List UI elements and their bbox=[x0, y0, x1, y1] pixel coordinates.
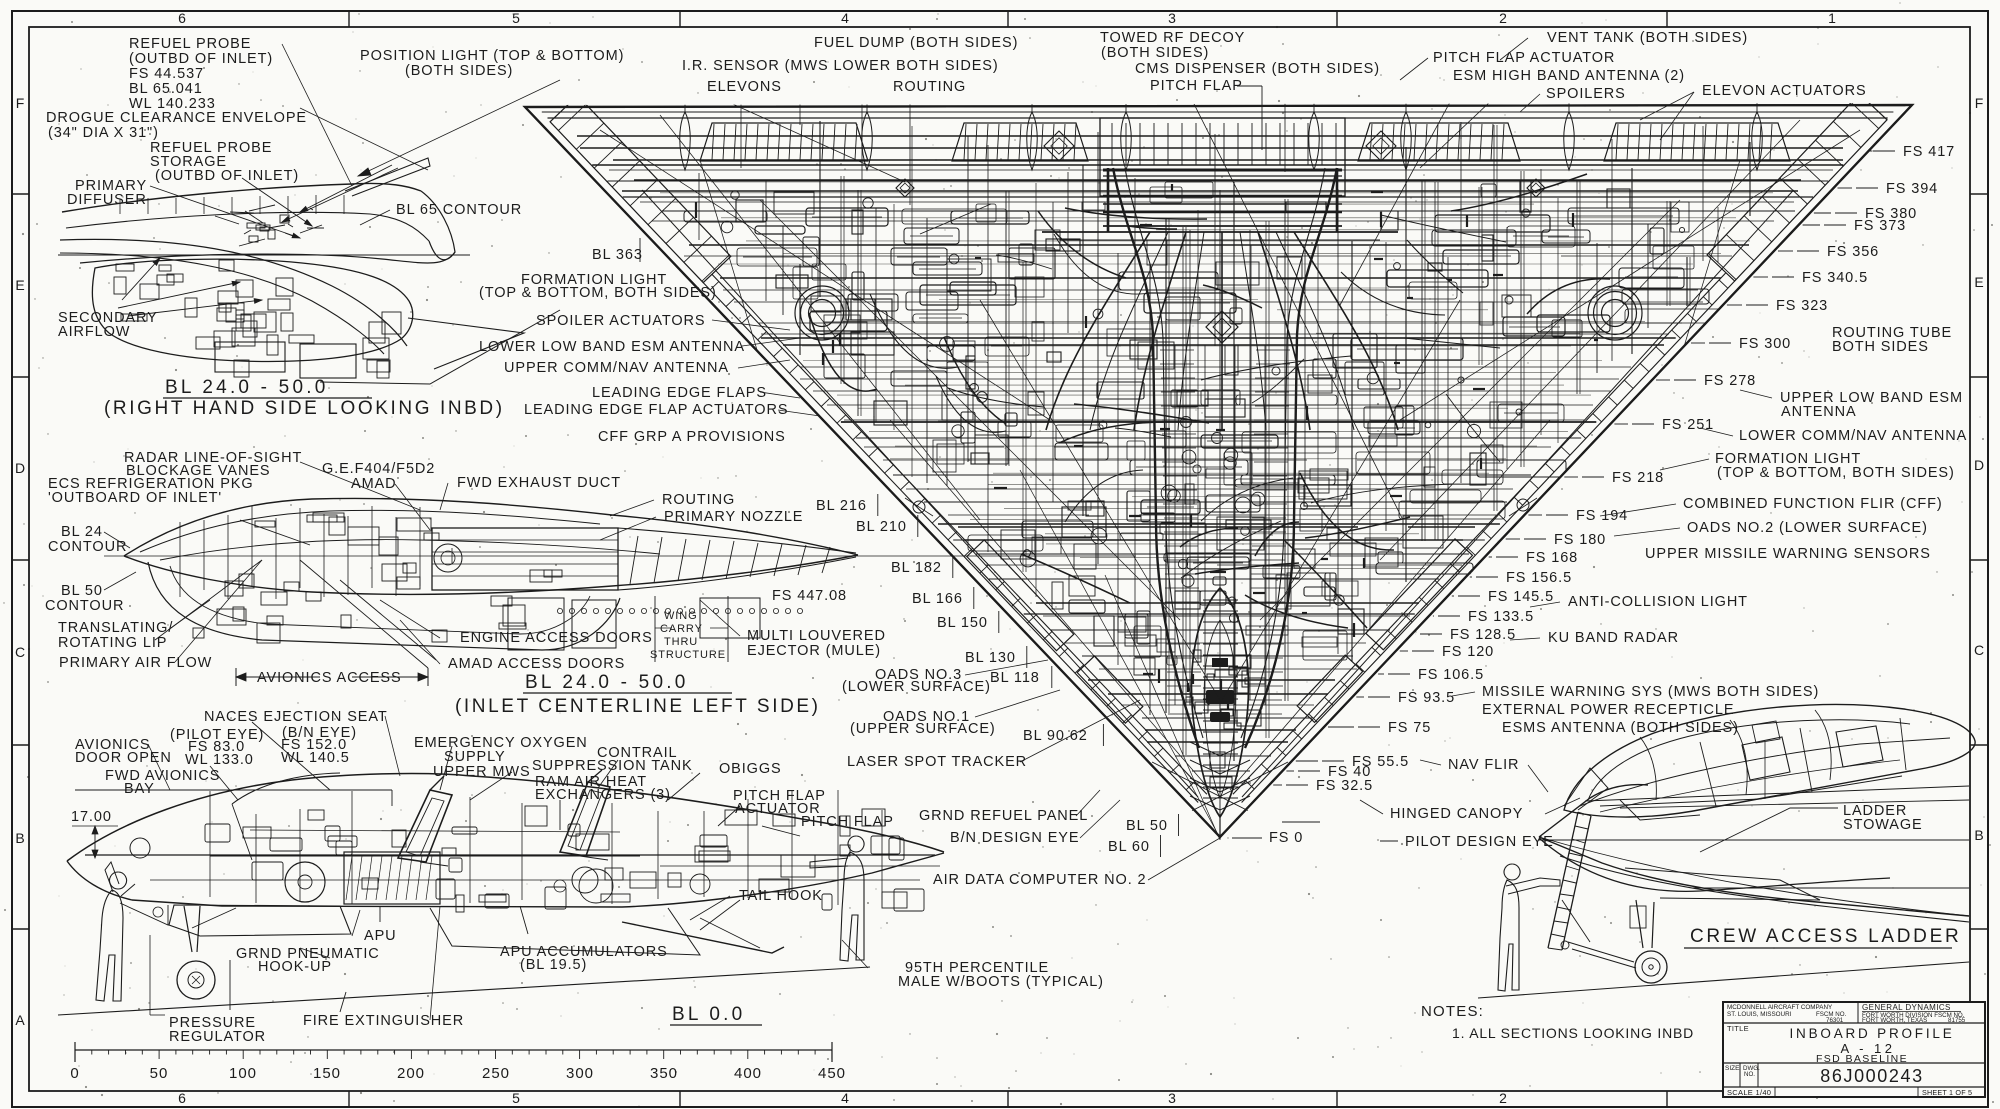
svg-text:6: 6 bbox=[178, 10, 186, 26]
svg-text:SPOILER ACTUATORS: SPOILER ACTUATORS bbox=[536, 313, 705, 329]
svg-text:SUPPLY: SUPPLY bbox=[444, 749, 506, 765]
svg-text:ROTATING LIP: ROTATING LIP bbox=[58, 635, 167, 651]
svg-text:FS 300: FS 300 bbox=[1739, 336, 1791, 352]
svg-text:400: 400 bbox=[734, 1065, 762, 1082]
svg-text:MISSILE WARNING SYS (MWS BOTH: MISSILE WARNING SYS (MWS BOTH SIDES) bbox=[1482, 684, 1819, 700]
svg-text:(BL 19.5): (BL 19.5) bbox=[520, 957, 587, 973]
svg-text:BL 118: BL 118 bbox=[990, 670, 1040, 686]
svg-text:BL 130: BL 130 bbox=[965, 650, 1016, 666]
svg-text:BOTH SIDES: BOTH SIDES bbox=[1832, 339, 1929, 355]
svg-text:3: 3 bbox=[1168, 1090, 1176, 1106]
svg-text:200: 200 bbox=[397, 1065, 425, 1082]
svg-text:FS 32.5: FS 32.5 bbox=[1316, 778, 1373, 794]
svg-text:KU BAND RADAR: KU BAND RADAR bbox=[1548, 630, 1679, 646]
svg-text:250: 250 bbox=[482, 1065, 510, 1082]
svg-text:STOWAGE: STOWAGE bbox=[1843, 817, 1923, 833]
svg-text:(TOP & BOTTOM, BOTH SIDES): (TOP & BOTTOM, BOTH SIDES) bbox=[1717, 465, 1955, 481]
svg-text:FIRE EXTINGUISHER: FIRE EXTINGUISHER bbox=[303, 1013, 464, 1029]
svg-text:THRU: THRU bbox=[664, 636, 698, 648]
svg-text:FSD BASELINE: FSD BASELINE bbox=[1816, 1053, 1908, 1065]
svg-text:GENERAL DYNAMICS: GENERAL DYNAMICS bbox=[1862, 1003, 1951, 1012]
svg-text:BL 50: BL 50 bbox=[61, 583, 103, 599]
svg-text:LOWER COMM/NAV ANTENNA: LOWER COMM/NAV ANTENNA bbox=[1739, 428, 1967, 444]
svg-text:WING: WING bbox=[664, 610, 698, 622]
svg-text:POSITION LIGHT (TOP & BOTTOM): POSITION LIGHT (TOP & BOTTOM) bbox=[360, 48, 624, 64]
svg-text:BL 0.0: BL 0.0 bbox=[672, 1004, 745, 1025]
svg-text:D: D bbox=[15, 460, 25, 476]
svg-text:ENGINE ACCESS DOORS: ENGINE ACCESS DOORS bbox=[460, 630, 653, 646]
svg-text:BL 65.041: BL 65.041 bbox=[129, 81, 203, 97]
svg-text:1: 1 bbox=[1828, 10, 1836, 26]
svg-text:ROUTING: ROUTING bbox=[662, 492, 735, 508]
svg-text:NAV FLIR: NAV FLIR bbox=[1448, 757, 1519, 773]
svg-text:B: B bbox=[1974, 827, 1983, 843]
svg-text:FS 128.5: FS 128.5 bbox=[1450, 627, 1516, 643]
svg-text:SCALE 1/40: SCALE 1/40 bbox=[1727, 1088, 1771, 1097]
svg-text:2: 2 bbox=[1499, 10, 1507, 26]
svg-text:(UPPER SURFACE): (UPPER SURFACE) bbox=[850, 721, 996, 737]
svg-text:BL 210: BL 210 bbox=[856, 519, 907, 535]
svg-text:FS 106.5: FS 106.5 bbox=[1418, 667, 1484, 683]
svg-text:CREW ACCESS LADDER: CREW ACCESS LADDER bbox=[1690, 926, 1961, 947]
svg-text:FS 394: FS 394 bbox=[1886, 181, 1938, 197]
svg-text:NOTES:: NOTES: bbox=[1421, 1003, 1484, 1020]
svg-text:APU: APU bbox=[364, 928, 397, 944]
svg-text:D: D bbox=[1974, 457, 1984, 473]
svg-text:4: 4 bbox=[841, 10, 849, 26]
svg-text:ROUTING: ROUTING bbox=[893, 79, 966, 95]
svg-text:(LOWER SURFACE): (LOWER SURFACE) bbox=[842, 679, 991, 695]
svg-text:4: 4 bbox=[841, 1090, 849, 1106]
svg-text:NO.: NO. bbox=[1744, 1071, 1755, 1078]
svg-text:FS 340.5: FS 340.5 bbox=[1802, 270, 1868, 286]
svg-text:76301: 76301 bbox=[1826, 1017, 1844, 1024]
svg-text:G.E.F404/F5D2: G.E.F404/F5D2 bbox=[322, 461, 435, 477]
svg-text:BL 24: BL 24 bbox=[61, 524, 103, 540]
svg-text:BL 150: BL 150 bbox=[937, 615, 988, 631]
svg-text:CMS DISPENSER (BOTH SIDES): CMS DISPENSER (BOTH SIDES) bbox=[1135, 61, 1380, 77]
svg-text:I.R. SENSOR (MWS LOWER BOTH SI: I.R. SENSOR (MWS LOWER BOTH SIDES) bbox=[682, 58, 999, 74]
svg-text:FS 133.5: FS 133.5 bbox=[1468, 609, 1534, 625]
svg-text:SPOILERS: SPOILERS bbox=[1546, 86, 1626, 102]
svg-text:MCDONNELL AIRCRAFT COMPANY: MCDONNELL AIRCRAFT COMPANY bbox=[1727, 1004, 1833, 1011]
svg-text:FS 168: FS 168 bbox=[1526, 550, 1578, 566]
svg-text:HINGED CANOPY: HINGED CANOPY bbox=[1390, 806, 1523, 822]
svg-text:BL 216: BL 216 bbox=[816, 498, 867, 514]
svg-text:F: F bbox=[16, 95, 25, 111]
svg-text:LASER SPOT TRACKER: LASER SPOT TRACKER bbox=[847, 754, 1027, 770]
svg-text:UPPER COMM/NAV ANTENNA: UPPER COMM/NAV ANTENNA bbox=[504, 360, 729, 376]
svg-text:REGULATOR: REGULATOR bbox=[169, 1029, 266, 1045]
svg-text:PITCH FLAP: PITCH FLAP bbox=[1150, 78, 1243, 94]
svg-text:OADS NO.2 (LOWER SURFACE): OADS NO.2 (LOWER SURFACE) bbox=[1687, 520, 1928, 536]
svg-text:FS 93.5: FS 93.5 bbox=[1398, 690, 1455, 706]
svg-text:'OUTBOARD OF INLET': 'OUTBOARD OF INLET' bbox=[48, 490, 222, 506]
svg-text:3: 3 bbox=[1168, 10, 1176, 26]
svg-text:ELEVON ACTUATORS: ELEVON ACTUATORS bbox=[1702, 83, 1867, 99]
svg-text:C: C bbox=[1974, 642, 1984, 658]
svg-text:5: 5 bbox=[512, 1090, 520, 1106]
svg-text:(INLET CENTERLINE LEFT SIDE): (INLET CENTERLINE LEFT SIDE) bbox=[455, 696, 821, 717]
svg-text:TITLE: TITLE bbox=[1727, 1024, 1749, 1033]
svg-text:CARRY: CARRY bbox=[660, 623, 703, 635]
svg-text:DIFFUSER: DIFFUSER bbox=[67, 192, 147, 208]
svg-text:AIR DATA COMPUTER NO. 2: AIR DATA COMPUTER NO. 2 bbox=[933, 872, 1147, 888]
svg-text:PITCH FLAP ACTUATOR: PITCH FLAP ACTUATOR bbox=[1433, 50, 1615, 66]
svg-text:FS 278: FS 278 bbox=[1704, 373, 1756, 389]
svg-text:BL 363: BL 363 bbox=[592, 247, 643, 263]
svg-text:REFUEL PROBE: REFUEL PROBE bbox=[129, 36, 251, 52]
svg-text:FORT WORTH, TEXAS: FORT WORTH, TEXAS bbox=[1862, 1017, 1927, 1024]
svg-text:ESM HIGH BAND ANTENNA (2): ESM HIGH BAND ANTENNA (2) bbox=[1453, 68, 1685, 84]
svg-text:FS 0: FS 0 bbox=[1269, 830, 1303, 846]
svg-text:ESMS ANTENNA (BOTH SIDES): ESMS ANTENNA (BOTH SIDES) bbox=[1502, 720, 1739, 736]
svg-text:FWD EXHAUST DUCT: FWD EXHAUST DUCT bbox=[457, 475, 621, 491]
svg-text:450: 450 bbox=[818, 1065, 846, 1082]
svg-text:0: 0 bbox=[70, 1065, 79, 1082]
svg-text:350: 350 bbox=[650, 1065, 678, 1082]
svg-text:300: 300 bbox=[566, 1065, 594, 1082]
svg-text:(BOTH SIDES): (BOTH SIDES) bbox=[1101, 45, 1209, 61]
svg-text:FS 323: FS 323 bbox=[1776, 298, 1828, 314]
svg-text:ST. LOUIS, MISSOURI: ST. LOUIS, MISSOURI bbox=[1727, 1011, 1792, 1018]
svg-text:COMBINED FUNCTION FLIR (CFF): COMBINED FUNCTION FLIR (CFF) bbox=[1683, 496, 1943, 512]
svg-text:6: 6 bbox=[178, 1090, 186, 1106]
svg-text:(OUTBD OF INLET): (OUTBD OF INLET) bbox=[155, 168, 299, 184]
svg-text:FS 180: FS 180 bbox=[1554, 532, 1606, 548]
svg-text:50: 50 bbox=[150, 1065, 169, 1082]
svg-text:C: C bbox=[15, 644, 25, 660]
svg-text:BL 50: BL 50 bbox=[1126, 818, 1168, 834]
svg-text:FS 218: FS 218 bbox=[1612, 470, 1664, 486]
svg-text:FS 417: FS 417 bbox=[1903, 144, 1955, 160]
svg-text:2: 2 bbox=[1499, 1090, 1507, 1106]
svg-text:ANTI-COLLISION LIGHT: ANTI-COLLISION LIGHT bbox=[1568, 594, 1748, 610]
svg-text:OBIGGS: OBIGGS bbox=[719, 761, 782, 777]
svg-text:EJECTOR (MULE): EJECTOR (MULE) bbox=[747, 643, 881, 659]
svg-text:CONTOUR: CONTOUR bbox=[48, 539, 127, 555]
svg-text:VENT TANK (BOTH SIDES): VENT TANK (BOTH SIDES) bbox=[1547, 30, 1748, 46]
svg-text:NACES EJECTION SEAT: NACES EJECTION SEAT bbox=[204, 709, 388, 725]
svg-text:(34" DIA X 31"): (34" DIA X 31") bbox=[48, 125, 159, 141]
svg-text:MALE W/BOOTS (TYPICAL): MALE W/BOOTS (TYPICAL) bbox=[898, 974, 1104, 990]
svg-text:EXTERNAL POWER RECEPTICLE: EXTERNAL POWER RECEPTICLE bbox=[1482, 702, 1734, 718]
svg-text:BL 24.0 - 50.0: BL 24.0 - 50.0 bbox=[165, 377, 328, 398]
svg-text:86J000243: 86J000243 bbox=[1820, 1066, 1924, 1086]
svg-text:LOWER LOW BAND ESM ANTENNA: LOWER LOW BAND ESM ANTENNA bbox=[479, 339, 745, 355]
svg-text:SUPPRESSION TANK: SUPPRESSION TANK bbox=[532, 758, 693, 774]
svg-text:HOOK-UP: HOOK-UP bbox=[258, 959, 332, 975]
svg-text:(OUTBD OF INLET): (OUTBD OF INLET) bbox=[129, 51, 273, 67]
svg-text:LEADING EDGE FLAP ACTUATORS: LEADING EDGE FLAP ACTUATORS bbox=[524, 402, 788, 418]
svg-text:PRIMARY AIR FLOW: PRIMARY AIR FLOW bbox=[59, 655, 212, 671]
svg-text:PITCH FLAP: PITCH FLAP bbox=[801, 814, 894, 830]
svg-text:81755: 81755 bbox=[1948, 1017, 1966, 1024]
svg-text:FUEL DUMP (BOTH SIDES): FUEL DUMP (BOTH SIDES) bbox=[814, 35, 1018, 51]
svg-text:BL 65 CONTOUR: BL 65 CONTOUR bbox=[396, 202, 522, 218]
svg-text:WL 140.5: WL 140.5 bbox=[281, 750, 350, 766]
svg-text:E: E bbox=[15, 277, 24, 293]
svg-text:PRIMARY NOZZLE: PRIMARY NOZZLE bbox=[664, 509, 803, 525]
svg-text:F: F bbox=[1975, 95, 1984, 111]
svg-text:AMAD ACCESS DOORS: AMAD ACCESS DOORS bbox=[448, 656, 625, 672]
svg-text:FS 120: FS 120 bbox=[1442, 644, 1494, 660]
svg-text:ANTENNA: ANTENNA bbox=[1781, 404, 1857, 420]
svg-text:B/N DESIGN EYE: B/N DESIGN EYE bbox=[950, 830, 1079, 846]
svg-text:DROGUE CLEARANCE ENVELOPE: DROGUE CLEARANCE ENVELOPE bbox=[46, 110, 307, 126]
svg-text:FS 356: FS 356 bbox=[1827, 244, 1879, 260]
svg-text:A: A bbox=[15, 1012, 25, 1028]
svg-text:STRUCTURE: STRUCTURE bbox=[650, 649, 726, 661]
svg-text:BL 60: BL 60 bbox=[1108, 839, 1150, 855]
svg-text:100: 100 bbox=[229, 1065, 257, 1082]
svg-text:BL 90.62: BL 90.62 bbox=[1023, 728, 1088, 744]
svg-text:SHEET 1 OF 5: SHEET 1 OF 5 bbox=[1922, 1088, 1972, 1097]
svg-text:CONTOUR: CONTOUR bbox=[45, 598, 124, 614]
svg-text:AVIONICS ACCESS: AVIONICS ACCESS bbox=[257, 670, 402, 686]
svg-text:WL 133.0: WL 133.0 bbox=[185, 752, 254, 768]
svg-text:(RIGHT HAND SIDE LOOKING INBD): (RIGHT HAND SIDE LOOKING INBD) bbox=[104, 398, 505, 419]
svg-text:FWD AVIONICS: FWD AVIONICS bbox=[105, 768, 220, 784]
svg-text:(BOTH SIDES): (BOTH SIDES) bbox=[405, 63, 513, 79]
svg-text:(TOP & BOTTOM, BOTH SIDES): (TOP & BOTTOM, BOTH SIDES) bbox=[479, 285, 717, 301]
svg-text:FS 75: FS 75 bbox=[1388, 720, 1431, 736]
svg-text:5: 5 bbox=[512, 10, 520, 26]
svg-text:UPPER MISSILE WARNING SENSORS: UPPER MISSILE WARNING SENSORS bbox=[1645, 546, 1931, 562]
svg-text:BL 182: BL 182 bbox=[891, 560, 942, 576]
svg-text:PILOT DESIGN EYE: PILOT DESIGN EYE bbox=[1405, 834, 1554, 850]
svg-text:LEADING EDGE FLAPS: LEADING EDGE FLAPS bbox=[592, 385, 767, 401]
svg-text:150: 150 bbox=[313, 1065, 341, 1082]
svg-text:17.00: 17.00 bbox=[71, 809, 112, 825]
svg-text:UPPER MWS: UPPER MWS bbox=[433, 764, 531, 780]
svg-text:CFF GRP A PROVISIONS: CFF GRP A PROVISIONS bbox=[598, 429, 786, 445]
svg-text:TOWED RF DECOY: TOWED RF DECOY bbox=[1100, 30, 1245, 46]
svg-text:FS 44.537: FS 44.537 bbox=[129, 66, 204, 82]
svg-text:SIZE: SIZE bbox=[1725, 1065, 1740, 1072]
svg-text:TRANSLATING/: TRANSLATING/ bbox=[58, 620, 173, 636]
svg-text:FS 145.5: FS 145.5 bbox=[1488, 589, 1554, 605]
svg-text:AMAD: AMAD bbox=[351, 476, 397, 492]
svg-text:E: E bbox=[1974, 274, 1983, 290]
svg-text:FS 447.08: FS 447.08 bbox=[772, 588, 847, 604]
svg-text:FS 251: FS 251 bbox=[1662, 417, 1714, 433]
svg-text:FS 156.5: FS 156.5 bbox=[1506, 570, 1572, 586]
svg-text:BL 166: BL 166 bbox=[912, 591, 963, 607]
svg-text:FS 373: FS 373 bbox=[1854, 218, 1906, 234]
svg-text:INBOARD PROFILE: INBOARD PROFILE bbox=[1789, 1026, 1954, 1041]
svg-text:MULTI LOUVERED: MULTI LOUVERED bbox=[747, 628, 886, 644]
svg-text:ELEVONS: ELEVONS bbox=[707, 79, 782, 95]
svg-text:BL 24.0 - 50.0: BL 24.0 - 50.0 bbox=[525, 672, 688, 693]
svg-text:1. ALL SECTIONS LOOKING INBD: 1. ALL SECTIONS LOOKING INBD bbox=[1452, 1025, 1694, 1041]
svg-text:BAY: BAY bbox=[124, 781, 155, 797]
svg-text:AIRFLOW: AIRFLOW bbox=[58, 324, 130, 340]
svg-text:TAIL HOOK: TAIL HOOK bbox=[739, 888, 823, 904]
svg-text:B: B bbox=[15, 830, 24, 846]
svg-text:EXCHANGERS (3): EXCHANGERS (3) bbox=[535, 787, 671, 803]
svg-text:GRND REFUEL PANEL: GRND REFUEL PANEL bbox=[919, 808, 1088, 824]
